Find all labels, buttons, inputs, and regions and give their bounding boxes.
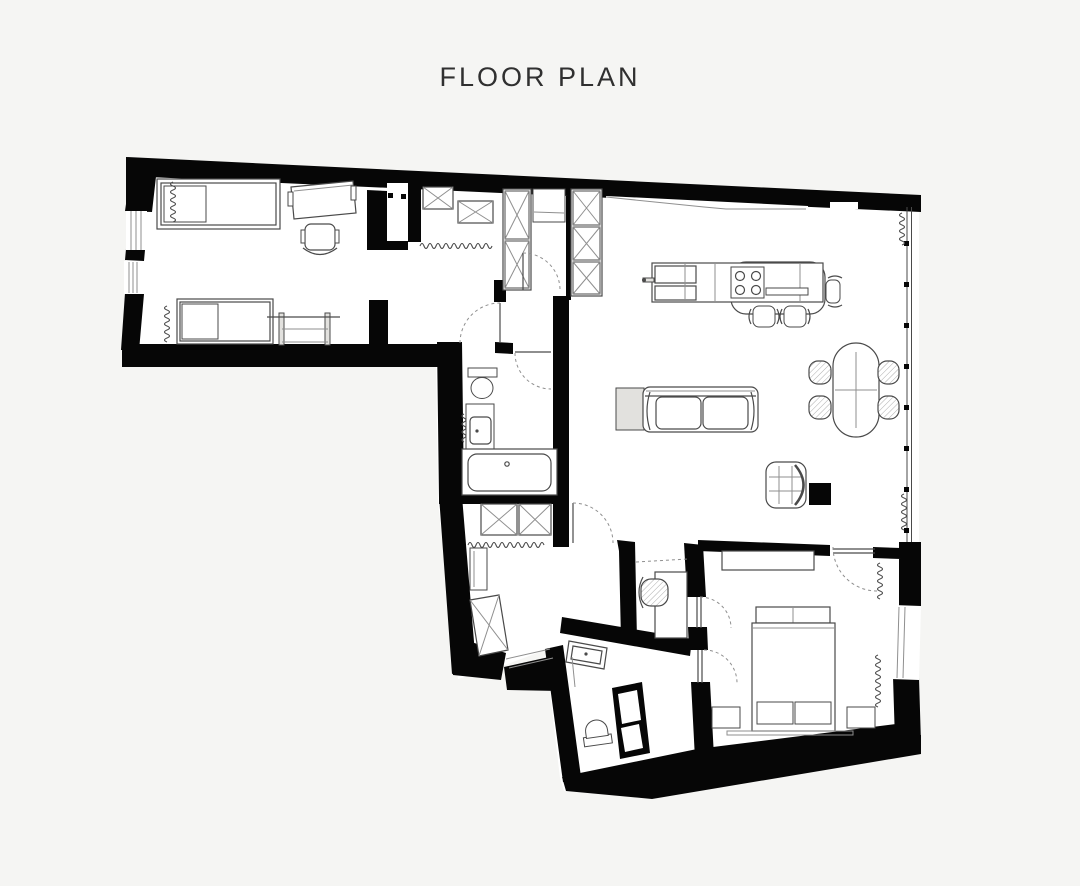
closet-column xyxy=(503,189,531,290)
dining-chair xyxy=(809,361,831,384)
dining-chair xyxy=(878,396,899,419)
cooktop-four-burners xyxy=(731,267,764,298)
single-bed-2 xyxy=(177,299,273,344)
dresser xyxy=(722,551,814,570)
master-window xyxy=(891,605,921,680)
oval-dining-table xyxy=(833,343,879,437)
pillow-row xyxy=(756,607,830,623)
nightstand xyxy=(847,707,875,728)
desk xyxy=(288,181,356,219)
overhead-cabinet xyxy=(458,201,493,223)
nightstand xyxy=(712,707,740,728)
desk-chair xyxy=(301,224,339,255)
wardrobe-cabinet xyxy=(481,504,517,535)
overhead-cabinet xyxy=(423,187,453,209)
bar-stool xyxy=(780,306,810,327)
floor-plan-page: { "title": "FLOOR PLAN", "colors": { "ba… xyxy=(0,0,1080,886)
console xyxy=(533,189,565,222)
wardrobe-cabinet xyxy=(519,504,551,535)
wall-niche-2 xyxy=(830,202,858,209)
floor-plan-drawing xyxy=(0,0,1080,886)
counter-handle xyxy=(766,288,808,295)
double-bed xyxy=(752,623,835,731)
foot-cushion xyxy=(757,702,793,724)
tall-wardrobe xyxy=(571,189,602,296)
shower-partition-panel xyxy=(618,690,641,724)
bar-stool xyxy=(749,306,779,327)
dining-chair xyxy=(878,361,899,384)
washbasin-vanity xyxy=(466,404,494,452)
armchair xyxy=(766,462,806,508)
two-seat-sofa xyxy=(643,387,758,432)
bathtub xyxy=(462,449,557,495)
black-cube-table xyxy=(809,483,831,505)
dining-chair xyxy=(809,396,831,419)
side-table xyxy=(616,388,644,430)
mirror-cabinet xyxy=(470,548,487,590)
foot-cushion xyxy=(795,702,831,724)
